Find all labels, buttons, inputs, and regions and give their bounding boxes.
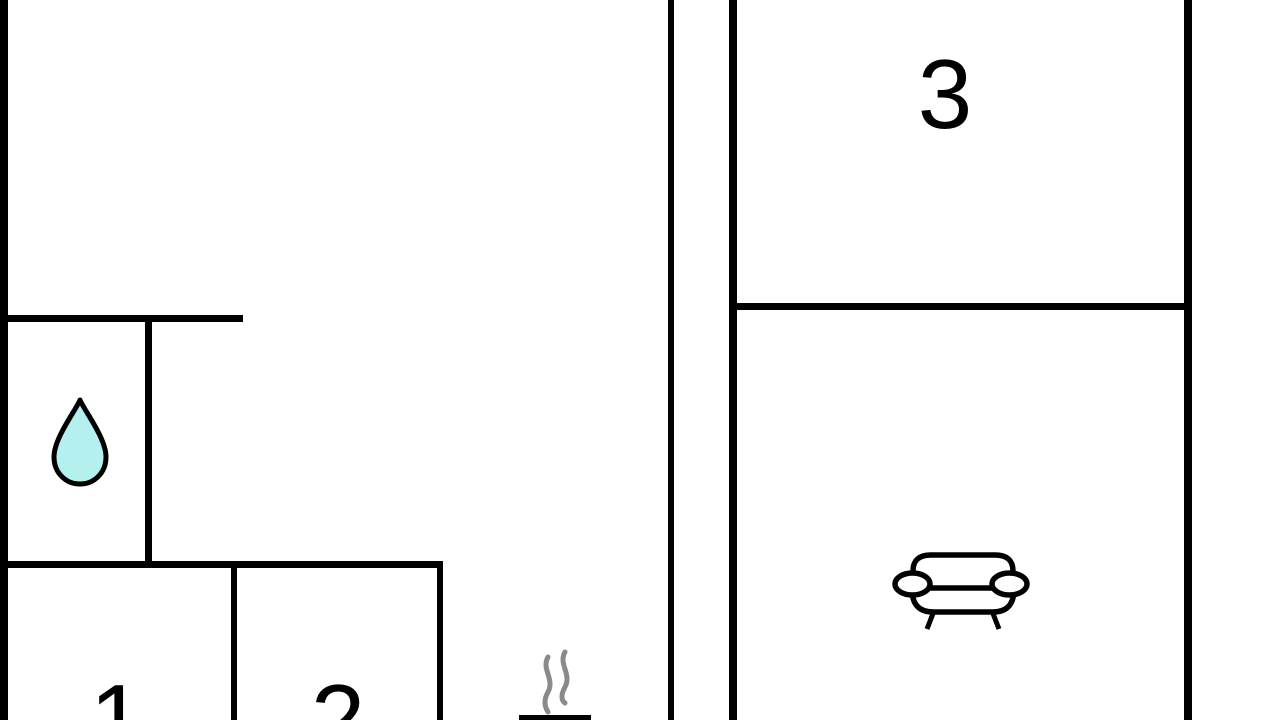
room-3-label: 3 <box>895 45 995 143</box>
water-drop-icon <box>50 396 110 488</box>
sofa-icon <box>885 545 1045 640</box>
wall-bathroom-right <box>145 315 152 567</box>
wall-mid-left <box>668 0 674 720</box>
living-room-area <box>737 310 1184 720</box>
wall-bedrooms-top <box>0 561 443 568</box>
wall-mid-right <box>729 0 737 720</box>
floor-plan: 1 2 3 <box>0 0 1280 720</box>
main-room-area <box>152 0 668 561</box>
steam-icon <box>531 645 579 720</box>
wall-room3-bottom <box>737 303 1184 310</box>
coffee-cup-icon <box>519 715 591 720</box>
room-2-label: 2 <box>288 670 388 720</box>
room-1-label: 1 <box>67 670 167 720</box>
wall-room1-room2-divider <box>231 561 237 720</box>
wall-outer-right <box>1184 0 1192 720</box>
wall-outer-left <box>0 0 8 720</box>
wall-bathroom-top <box>0 315 243 322</box>
corridor-area <box>674 0 729 720</box>
wall-room2-right <box>437 561 443 720</box>
